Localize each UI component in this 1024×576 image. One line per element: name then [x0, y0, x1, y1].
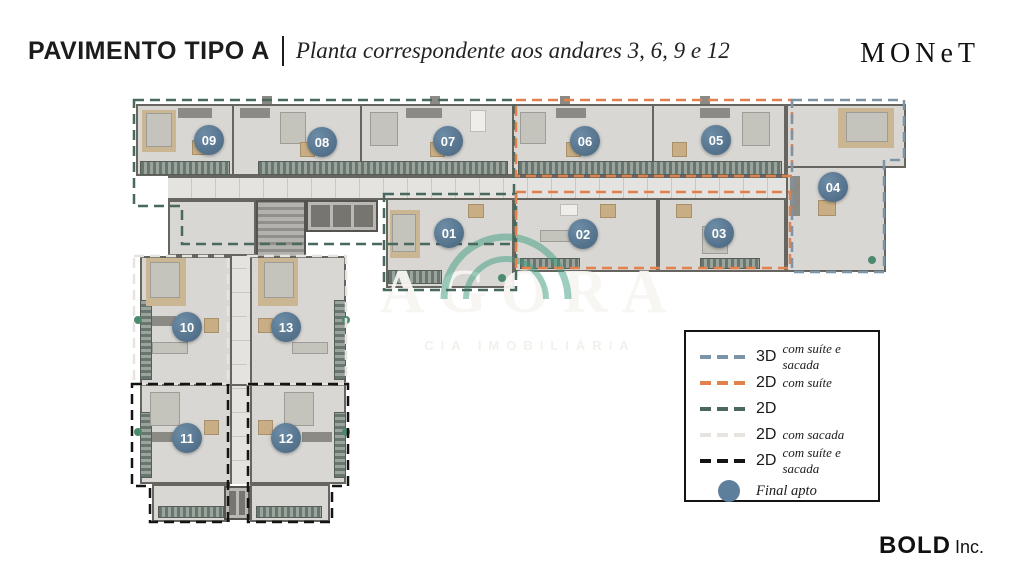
final-apto-label: Final apto — [756, 483, 817, 500]
outline-2dss-unit12 — [248, 384, 348, 522]
legend-desc: com suíte e sacada — [782, 445, 878, 477]
legend-code: 2D — [756, 374, 776, 392]
unit-badge-01: 01 — [434, 218, 464, 248]
unit-badge-10: 10 — [172, 312, 202, 342]
outline-2dsuite-bottom — [516, 192, 790, 268]
legend-code: 2D — [756, 452, 776, 470]
legend-dash-swatch — [700, 381, 746, 385]
outline-3d-unit04 — [792, 100, 904, 272]
legend-item-4: 2Dcom suíte e sacada — [700, 448, 878, 474]
legend-code: 2D — [756, 400, 776, 418]
final-apto-dot — [718, 480, 740, 502]
legend-dash-swatch — [700, 433, 746, 437]
legend-rows: 3Dcom suíte e sacada2Dcom suíte2D2Dcom s… — [700, 344, 878, 474]
legend-dash-swatch — [700, 459, 746, 463]
unit-badge-07: 07 — [433, 126, 463, 156]
outline-2dsuite-top — [516, 100, 792, 176]
legend-item-2: 2D — [700, 396, 878, 422]
legend-box: 3Dcom suíte e sacada2Dcom suíte2D2Dcom s… — [684, 330, 880, 502]
unit-badge-04: 04 — [818, 172, 848, 202]
unit-badge-09: 09 — [194, 125, 224, 155]
legend-item-1: 2Dcom suíte — [700, 370, 878, 396]
legend-desc: com suíte — [782, 375, 831, 391]
unit-badge-06: 06 — [570, 126, 600, 156]
unit-badge-12: 12 — [271, 423, 301, 453]
outline-2dss-unit11 — [132, 384, 228, 522]
unit-badge-03: 03 — [704, 218, 734, 248]
legend-dash-swatch — [700, 407, 746, 411]
unit-badge-05: 05 — [701, 125, 731, 155]
unit-badge-13: 13 — [271, 312, 301, 342]
legend-code: 3D — [756, 348, 776, 366]
unit-badge-11: 11 — [172, 423, 202, 453]
legend-desc: com sacada — [782, 427, 844, 443]
unit-badge-08: 08 — [307, 127, 337, 157]
legend-item-0: 3Dcom suíte e sacada — [700, 344, 878, 370]
legend-code: 2D — [756, 426, 776, 444]
legend-desc: com suíte e sacada — [782, 341, 878, 373]
legend-dash-swatch — [700, 355, 746, 359]
unit-badge-02: 02 — [568, 219, 598, 249]
legend-final-row: Final apto — [700, 476, 878, 506]
